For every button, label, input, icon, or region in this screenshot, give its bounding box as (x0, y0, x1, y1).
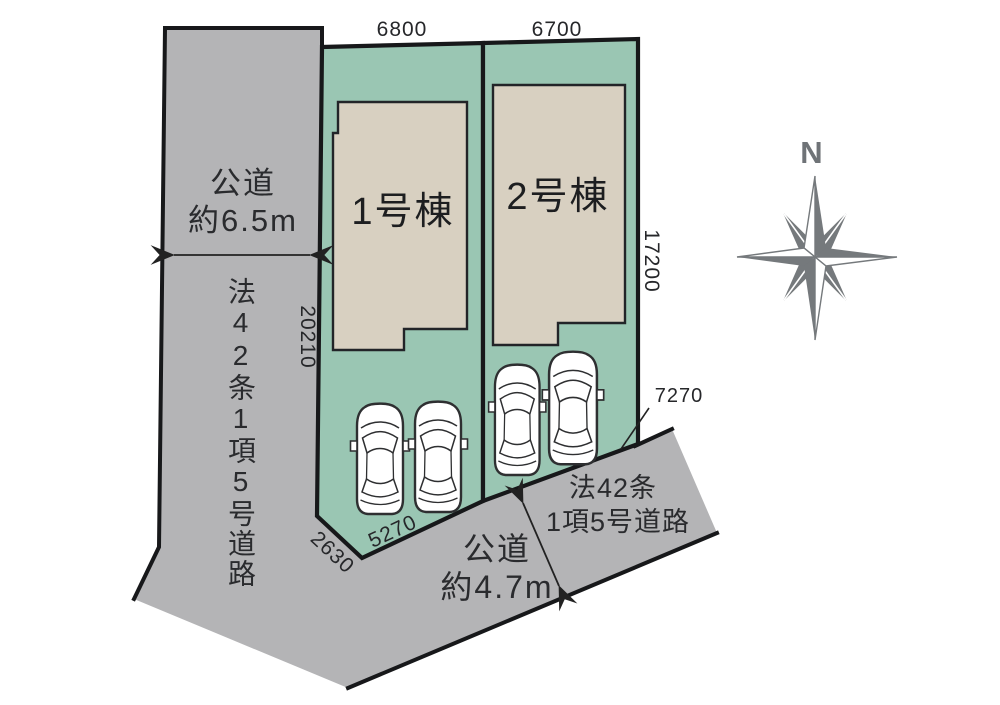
site-plan: 6800 6700 17200 20210 5270 2630 7270 1号棟… (0, 0, 1000, 705)
compass-rose-icon (737, 176, 897, 340)
car-icon (409, 402, 468, 512)
road-bottom-law-line1: 法42条 (543, 474, 683, 502)
building-1-label: 1号棟 (328, 193, 478, 233)
road-left-width: 約6.5m (178, 205, 308, 238)
dimension-road-frontage: 7270 (644, 386, 714, 407)
dimension-right-side: 17200 (640, 216, 662, 306)
dimension-left-side: 20210 (296, 292, 318, 382)
road-bottom-width: 約4.7m (432, 571, 562, 605)
road-left-name: 公道 (178, 168, 308, 201)
car-icon (351, 404, 410, 514)
road-bottom-law-line2: 1項5号道路 (533, 508, 703, 536)
car-icon (489, 365, 546, 475)
road-left-law-label: 法42条1項5号道路 (226, 277, 254, 589)
dimension-lot2-top: 6700 (517, 19, 597, 41)
compass-north-label: N (782, 137, 842, 170)
car-icon (542, 352, 603, 465)
building-2-label: 2号棟 (483, 178, 633, 218)
dimension-lot1-top: 6800 (362, 19, 442, 41)
road-bottom-name: 公道 (432, 533, 562, 567)
